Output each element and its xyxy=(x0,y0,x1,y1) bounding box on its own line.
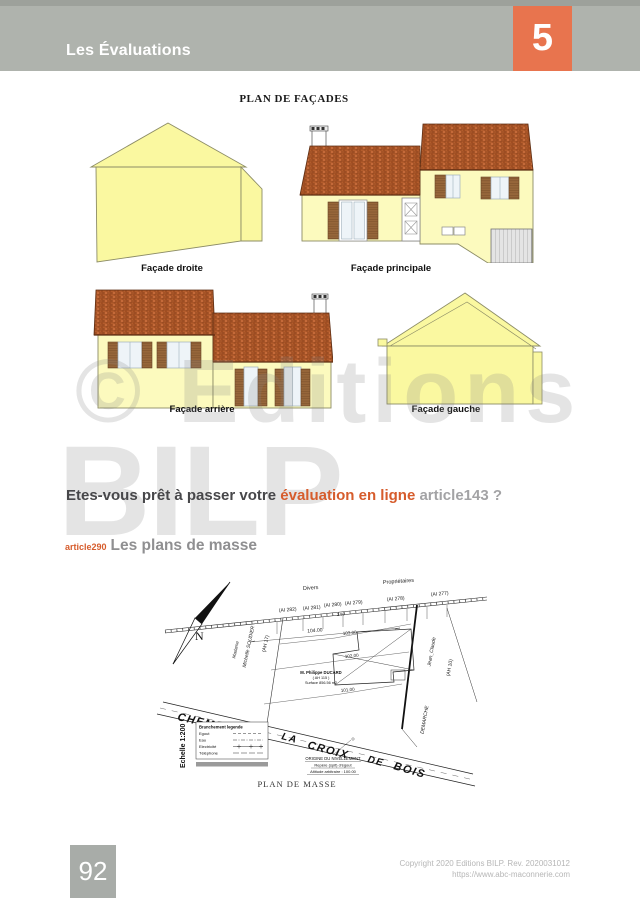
page-number-badge: 92 xyxy=(70,845,116,898)
facade-principale-label: Façade principale xyxy=(311,263,471,274)
section-heading: article290Les plans de masse xyxy=(65,537,257,555)
road-word: BOIS xyxy=(392,760,427,781)
north-label: N xyxy=(195,629,204,643)
dimension-main: 104.00 xyxy=(307,627,323,634)
copyright-line: Copyright 2020 Editions BILP. Rev. 20200… xyxy=(400,858,571,869)
contour-label: 102.00 xyxy=(345,653,360,659)
facade-droite-drawing xyxy=(88,121,263,264)
chapter-title: Les Évaluations xyxy=(66,42,191,60)
neighbor-right: DEMARCHE xyxy=(420,705,431,735)
neighbor-left: (AH 17) xyxy=(261,634,271,652)
copyright-block: Copyright 2020 Editions BILP. Rev. 20200… xyxy=(400,858,571,880)
cta-article-ref: article143 ? xyxy=(415,487,502,504)
parcel-id: (AI 282) xyxy=(279,606,298,614)
neighbor-right: (AH 10) xyxy=(446,658,455,676)
plan-label-divers: Divers xyxy=(303,585,319,592)
levelling-line: ORIGINE DU NIVELLEMENT xyxy=(305,756,361,761)
legend-item: Eau xyxy=(199,738,206,743)
chapter-number: 5 xyxy=(532,17,553,60)
legend-item: Egout xyxy=(199,731,210,736)
evaluation-cta: Etes-vous prêt à passer votre évaluation… xyxy=(66,487,502,504)
chapter-number-badge: 5 xyxy=(513,6,572,71)
section-title: Les plans de masse xyxy=(111,537,257,554)
document-page: Les Évaluations 5 PLAN DE FAÇADES xyxy=(0,0,640,906)
legend-item: Téléphone xyxy=(199,751,219,756)
contour-label: 103.00 xyxy=(343,630,358,636)
copyright-url[interactable]: https://www.abc-maconnerie.com xyxy=(400,869,571,880)
facade-principale-drawing xyxy=(295,123,535,263)
facades-figure-title: PLAN DE FAÇADES xyxy=(154,93,434,105)
scale-label: Echelle 1:200 xyxy=(180,724,187,768)
cta-prefix: Etes-vous prêt à passer votre xyxy=(66,487,280,504)
article-ref: article290 xyxy=(65,542,107,552)
levelling-line: Altitude arbitraire : 100.00 xyxy=(310,769,357,774)
owner-surface: Surface 856.56 m2 xyxy=(305,681,337,685)
parcel-id: (AI 277) xyxy=(431,590,450,598)
parcel-id: (AI 278) xyxy=(387,595,406,603)
levelling-line: Repère (spit) d'égout xyxy=(314,763,352,768)
neighbor-left: Michelle SOUDIER xyxy=(242,625,257,668)
legend-title: Branchement legende xyxy=(199,725,243,730)
road-word: DE xyxy=(366,754,385,769)
parcel-id: (AI 279) xyxy=(345,599,364,607)
owner-parcel: ( AH 115 ) xyxy=(313,676,331,680)
neighbor-left: Madame xyxy=(231,640,240,659)
cta-highlight-link[interactable]: évaluation en ligne xyxy=(280,487,415,504)
facade-droite-label: Façade droite xyxy=(102,263,242,274)
parcel-id: (AI 280) xyxy=(324,601,343,609)
dimension-secondary: 2.93 xyxy=(337,611,346,617)
site-plan-caption: PLAN DE MASSE xyxy=(227,779,367,789)
page-number: 92 xyxy=(79,856,108,887)
legend-item: Electricité xyxy=(199,744,217,749)
owner-name: M. Philippe DUCARD xyxy=(300,670,341,675)
neighbor-right: Jean_Claude xyxy=(426,637,437,668)
parcel-id: (AI 281) xyxy=(303,604,322,612)
road-word: LA xyxy=(280,731,299,746)
scale-bar xyxy=(196,762,268,767)
site-plan-drawing: N Divers Propriétaires (AI 282) (AI 281)… xyxy=(155,572,500,787)
plan-label-proprietaires: Propriétaires xyxy=(383,578,415,586)
